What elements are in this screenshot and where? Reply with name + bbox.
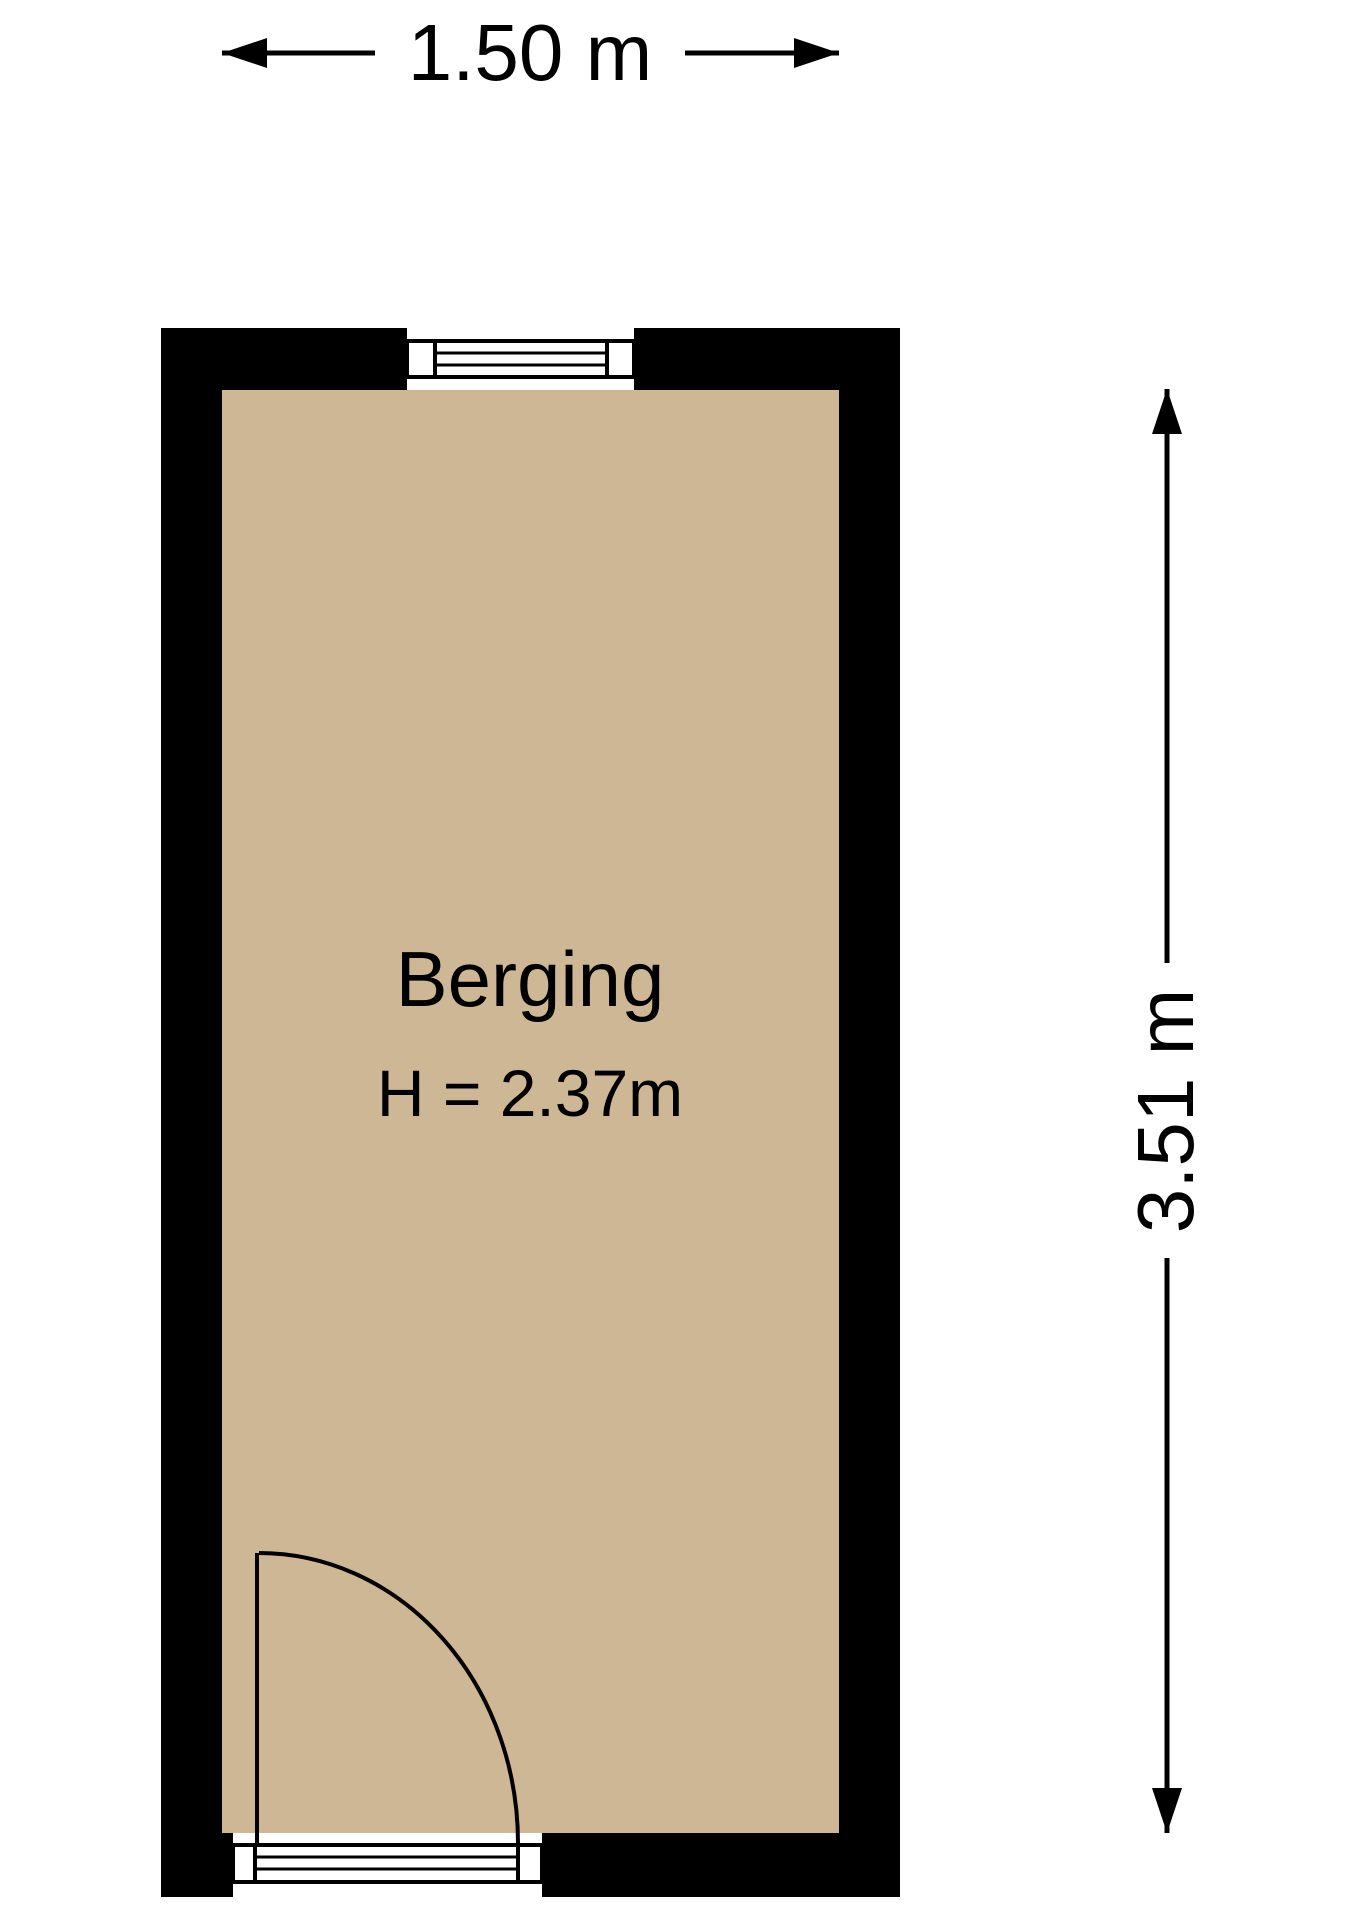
arrow-left-icon [222,38,267,68]
room-name-label: Berging [396,940,665,1018]
room-ceiling-height-label: H = 2.37m [377,1060,683,1126]
depth-dimension-label: 3.51 m [1126,989,1206,1234]
arrow-down-icon [1152,1788,1182,1833]
floorplan-drawing [0,0,1358,1920]
bottom-window-icon [233,1845,542,1882]
arrow-up-icon [1152,389,1182,434]
top-window-icon [407,341,634,377]
width-dimension-label: 1.50 m [408,13,653,93]
arrow-right-icon [794,38,839,68]
floorplan-canvas: 1.50 m 3.51 m Berging H = 2.37m [0,0,1358,1920]
